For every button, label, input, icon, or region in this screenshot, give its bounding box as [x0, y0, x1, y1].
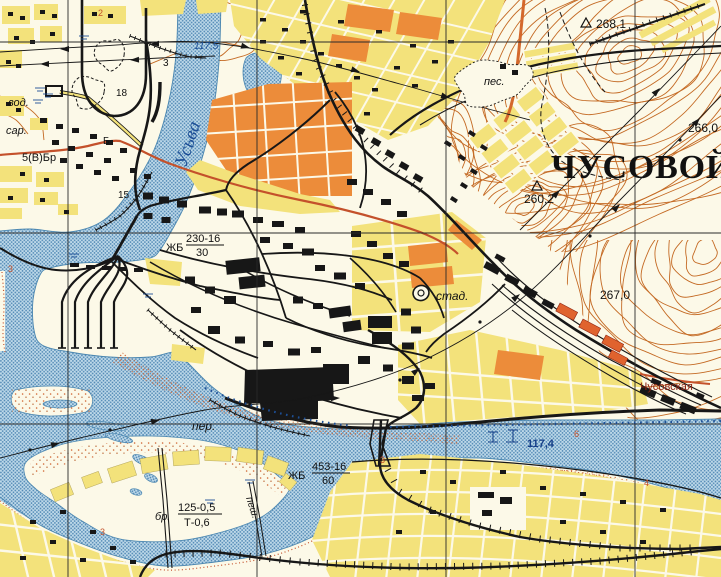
svg-text:4: 4: [644, 478, 649, 488]
svg-text:3: 3: [163, 58, 169, 69]
svg-text:117,4: 117,4: [527, 438, 555, 450]
svg-text:пер.: пер.: [192, 419, 215, 433]
svg-text:266,0: 266,0: [688, 121, 718, 135]
svg-text:125-0,5: 125-0,5: [178, 502, 215, 514]
svg-text:сар.: сар.: [6, 125, 27, 137]
svg-text:вод.: вод.: [8, 97, 29, 109]
svg-text:пес.: пес.: [484, 76, 505, 88]
svg-text:3: 3: [100, 527, 105, 537]
svg-text:бр.: бр.: [155, 511, 170, 523]
svg-text:30: 30: [196, 247, 208, 259]
svg-text:стад.: стад.: [436, 289, 469, 303]
svg-text:2: 2: [98, 8, 103, 18]
svg-text:Чусовская: Чусовская: [640, 381, 693, 393]
svg-text:3: 3: [380, 455, 385, 465]
svg-text:453-16: 453-16: [312, 461, 346, 473]
svg-text:260,2: 260,2: [524, 192, 554, 206]
svg-text:15: 15: [118, 190, 130, 201]
svg-text:ЖБ: ЖБ: [166, 242, 183, 254]
svg-text:ЖБ: ЖБ: [288, 470, 305, 482]
svg-text:6: 6: [574, 429, 579, 439]
svg-text:3: 3: [8, 264, 13, 274]
svg-text:18: 18: [116, 88, 128, 99]
svg-text:60: 60: [322, 475, 334, 487]
svg-text:Б: Б: [103, 136, 110, 147]
svg-text:230-16: 230-16: [186, 233, 220, 245]
svg-text:ЧУСОВОЙ: ЧУСОВОЙ: [551, 149, 721, 186]
svg-text:5(В)Бр: 5(В)Бр: [22, 152, 56, 164]
svg-text:117,5: 117,5: [194, 41, 219, 52]
svg-text:268,1: 268,1: [596, 17, 626, 31]
svg-text:Т-0,6: Т-0,6: [184, 517, 210, 529]
svg-text:267,0: 267,0: [600, 288, 630, 302]
